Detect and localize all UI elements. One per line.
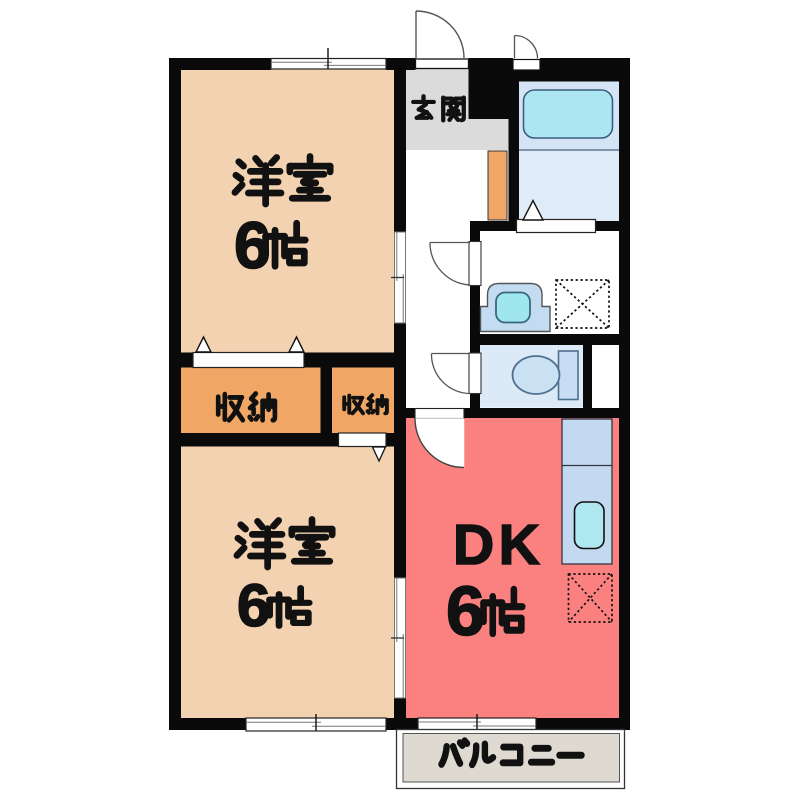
svg-text:DK: DK xyxy=(453,513,544,577)
svg-text:6: 6 xyxy=(446,572,485,650)
svg-text:6: 6 xyxy=(237,572,270,639)
